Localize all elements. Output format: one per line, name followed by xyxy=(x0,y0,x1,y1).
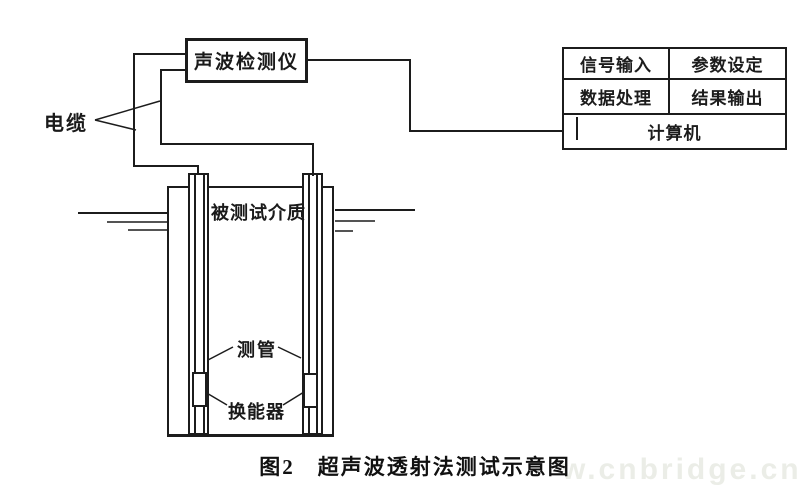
figure-canvas: w.cnbridge.cn 声波检测仪 信号输入 参数设定 数据处理 结果输出 … xyxy=(0,0,810,490)
wire-cable-right-tube xyxy=(161,70,313,176)
cable-pointer-lower xyxy=(95,120,136,130)
measuring-tube-label: 测管 xyxy=(237,336,277,362)
acoustic-detector-box: 声波检测仪 xyxy=(185,38,308,83)
computer-table: 信号输入 参数设定 数据处理 结果输出 计算机 xyxy=(562,47,787,150)
right-transducer xyxy=(303,373,318,408)
left-transducer xyxy=(192,372,207,407)
tested-medium-label: 被测试介质 xyxy=(211,199,306,225)
table-cell-signal-input: 信号输入 xyxy=(564,49,668,78)
cable-label: 电缆 xyxy=(44,107,88,136)
table-cell-parameter-setting: 参数设定 xyxy=(670,49,785,78)
table-cell-data-processing: 数据处理 xyxy=(564,80,668,113)
cable-pointer-upper xyxy=(95,101,160,120)
transducer-label: 换能器 xyxy=(228,398,285,424)
table-cell-computer: 计算机 xyxy=(564,115,785,148)
watermark-text: w.cnbridge.cn xyxy=(562,453,802,487)
wire-detector-to-computer xyxy=(308,60,562,131)
table-cell-result-output: 结果输出 xyxy=(670,80,785,113)
figure-caption: 图2 超声波透射法测试示意图 xyxy=(235,451,595,481)
